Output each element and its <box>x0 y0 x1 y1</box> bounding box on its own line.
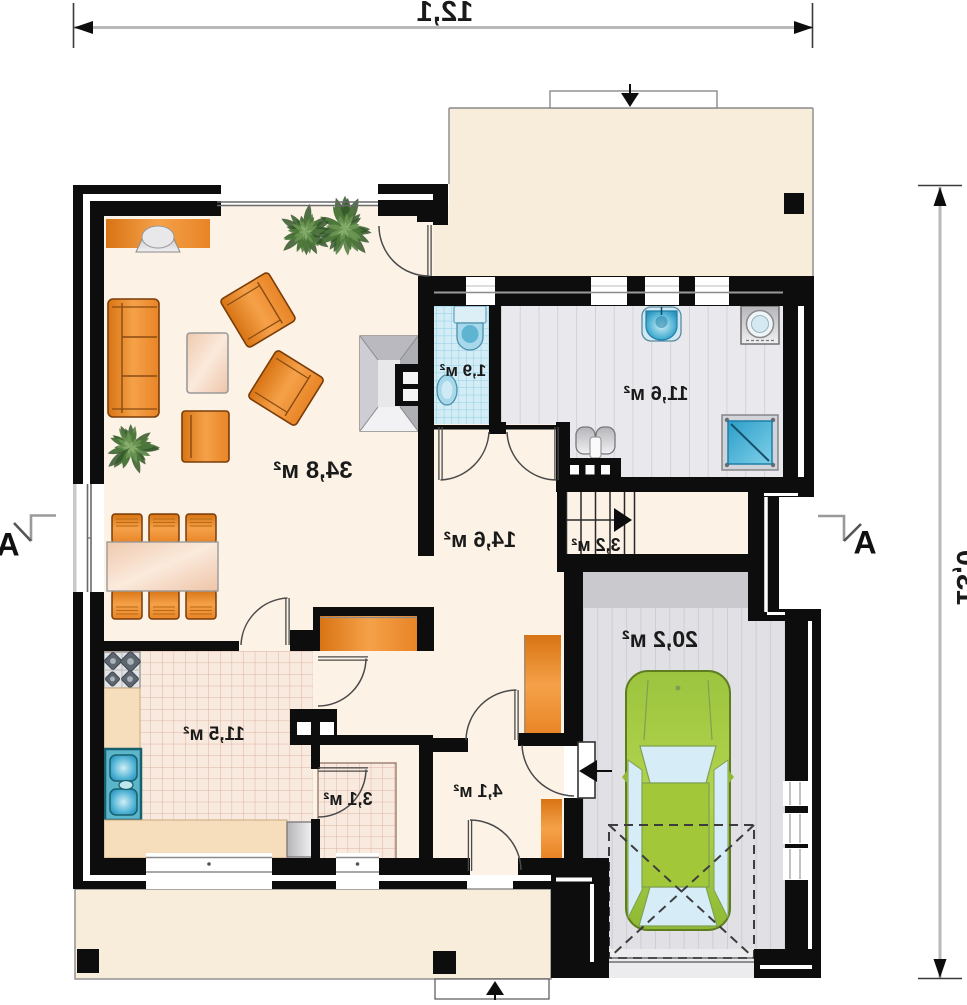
svg-text:11,5 м²: 11,5 м² <box>183 724 245 745</box>
svg-text:13,0: 13,0 <box>950 550 967 606</box>
svg-text:20,2 м²: 20,2 м² <box>622 626 698 652</box>
svg-text:A: A <box>0 527 20 563</box>
svg-text:4,1 м²: 4,1 м² <box>453 781 502 801</box>
svg-text:11,6 м²: 11,6 м² <box>623 383 688 405</box>
svg-text:12,1: 12,1 <box>417 0 473 28</box>
svg-text:14,6 м²: 14,6 м² <box>444 527 517 552</box>
svg-text:3,1 м²: 3,1 м² <box>323 789 372 809</box>
svg-text:A: A <box>853 525 876 561</box>
svg-text:34,8 м²: 34,8 м² <box>273 457 352 484</box>
svg-text:1,9 м²: 1,9 м² <box>439 361 486 380</box>
svg-text:3,2 м²: 3,2 м² <box>571 535 620 555</box>
